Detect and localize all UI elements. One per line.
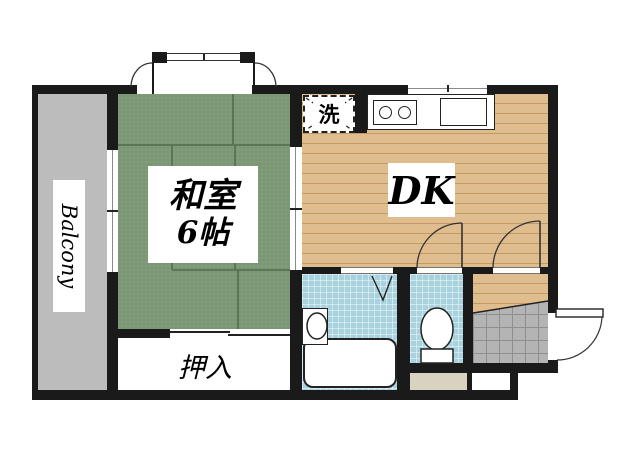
wall-balcony-tatami-lower bbox=[107, 272, 118, 390]
toilet-door-sill bbox=[417, 267, 462, 274]
wall-balcony-tatami-upper bbox=[107, 94, 118, 150]
wall-dk-bottom-2 bbox=[393, 267, 417, 274]
kitchen-window bbox=[408, 83, 487, 94]
wall-top-a bbox=[32, 85, 137, 94]
washitsu-label-box: 和室 6帖 bbox=[148, 166, 258, 263]
wall-dk-bottom-3 bbox=[462, 267, 493, 274]
wall-toilet-bottom bbox=[397, 363, 472, 373]
washitsu-label: 和室 bbox=[169, 177, 237, 216]
wall-tatami-dk-upper bbox=[290, 94, 302, 147]
stove-burner-right bbox=[398, 106, 411, 119]
dk-label-box: DK bbox=[388, 163, 455, 217]
laundry-label-box: 洗 bbox=[313, 102, 345, 126]
wall-balcony-left bbox=[32, 85, 38, 400]
wall-top-b bbox=[252, 85, 408, 94]
floor-plan: Balcony 和室 6帖 DK 押入 洗 bbox=[0, 0, 640, 455]
wall-step-divider bbox=[467, 373, 472, 390]
bathroom-door-sill bbox=[341, 267, 393, 274]
tatami-dk-sliding-door bbox=[290, 147, 302, 270]
bay-window-post-left bbox=[152, 52, 167, 63]
dk-label: DK bbox=[389, 168, 455, 213]
balcony-label: Balcony bbox=[57, 204, 81, 288]
closet-sliding-door bbox=[170, 329, 290, 338]
balcony-label-box: Balcony bbox=[53, 180, 85, 312]
wall-bottom-main bbox=[32, 390, 518, 400]
toilet-area bbox=[410, 274, 463, 363]
bay-window-post-right bbox=[240, 52, 255, 63]
oshiire-label: 押入 bbox=[178, 346, 232, 385]
balcony-window bbox=[107, 150, 118, 272]
bay-arc-right bbox=[255, 63, 276, 87]
pipe-space bbox=[408, 373, 467, 390]
stove bbox=[373, 100, 417, 125]
wall-tatami-dk-lower bbox=[290, 270, 302, 390]
oshiire-label-box: 押入 bbox=[160, 348, 250, 382]
wall-step bbox=[510, 373, 518, 400]
hall-door-sill bbox=[493, 267, 540, 274]
bay-arc-left bbox=[131, 63, 152, 87]
laundry-label: 洗 bbox=[319, 99, 340, 129]
kitchen-sink bbox=[440, 98, 487, 126]
entrance-door-arc bbox=[557, 317, 602, 360]
wall-genkan-bottom bbox=[467, 363, 558, 373]
wall-right-upper bbox=[548, 85, 558, 313]
wall-kitchen-stub bbox=[355, 94, 367, 133]
bathtub bbox=[303, 338, 397, 388]
wall-dk-bottom-1 bbox=[302, 267, 341, 274]
washitsu-size-label: 6帖 bbox=[177, 216, 230, 252]
washbasin-box bbox=[302, 308, 328, 345]
entrance-door-leaf bbox=[556, 309, 603, 317]
stove-burner-left bbox=[379, 106, 392, 119]
wall-closet-top bbox=[118, 329, 170, 338]
wall-toilet-hall bbox=[463, 274, 473, 363]
wall-dk-bottom-4 bbox=[540, 267, 548, 274]
bay-window-glazing bbox=[167, 53, 240, 61]
entrance-step bbox=[472, 373, 510, 390]
